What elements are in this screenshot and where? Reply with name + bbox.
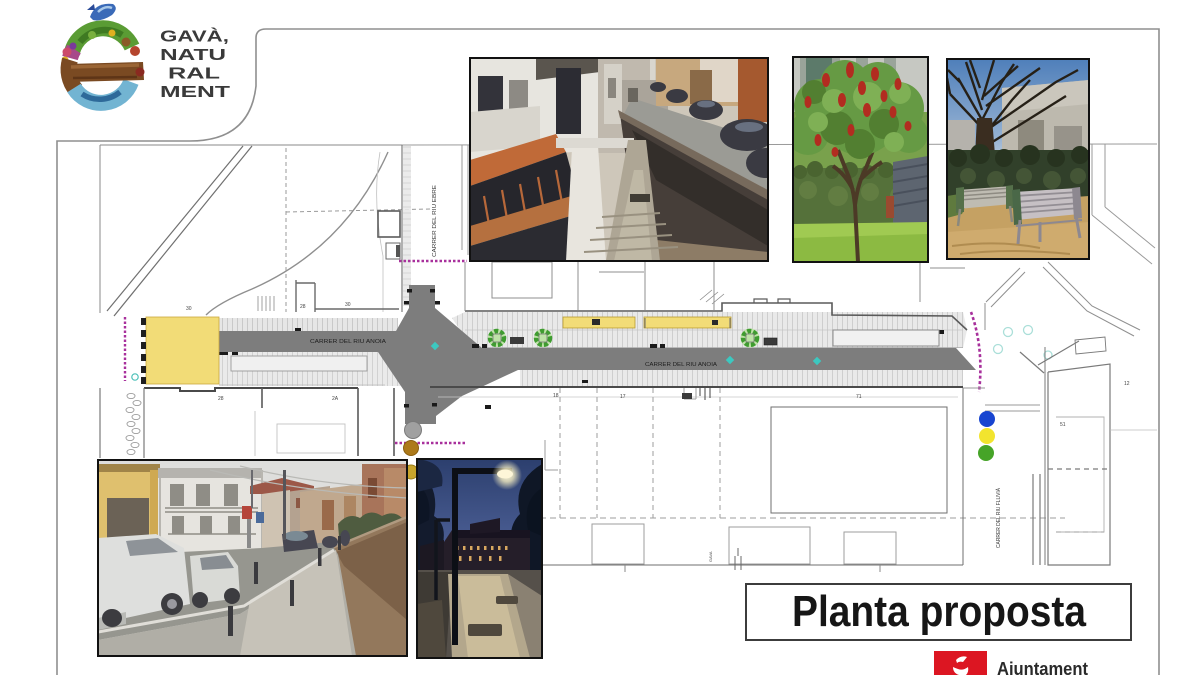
svg-text:2A: 2A xyxy=(332,396,339,402)
svg-text:CARRER DEL RIU FLUVIÀ: CARRER DEL RIU FLUVIÀ xyxy=(995,487,1002,548)
svg-text:CARRER DEL RIU ANOIA: CARRER DEL RIU ANOIA xyxy=(310,339,386,345)
svg-text:GAVA: GAVA xyxy=(708,551,713,562)
svg-text:Ajuntament: Ajuntament xyxy=(997,659,1088,675)
svg-text:71: 71 xyxy=(856,394,862,400)
svg-text:51: 51 xyxy=(1060,422,1066,428)
svg-text:RAL: RAL xyxy=(168,66,220,83)
svg-text:CARRER DEL RIU ANOIA: CARRER DEL RIU ANOIA xyxy=(645,362,717,368)
svg-text:CARRER DEL RIU EBRE: CARRER DEL RIU EBRE xyxy=(432,185,438,257)
svg-text:NATU: NATU xyxy=(160,47,226,64)
svg-text:30: 30 xyxy=(345,302,351,308)
svg-text:18: 18 xyxy=(553,393,559,399)
svg-text:GAVÀ,: GAVÀ, xyxy=(160,29,229,46)
svg-text:28: 28 xyxy=(218,396,224,402)
svg-text:17: 17 xyxy=(620,394,626,400)
svg-text:12: 12 xyxy=(1124,381,1130,387)
svg-text:Planta proposta: Planta proposta xyxy=(792,587,1086,636)
svg-text:28: 28 xyxy=(300,304,306,310)
svg-text:MENT: MENT xyxy=(160,84,231,101)
svg-text:30: 30 xyxy=(186,306,192,312)
